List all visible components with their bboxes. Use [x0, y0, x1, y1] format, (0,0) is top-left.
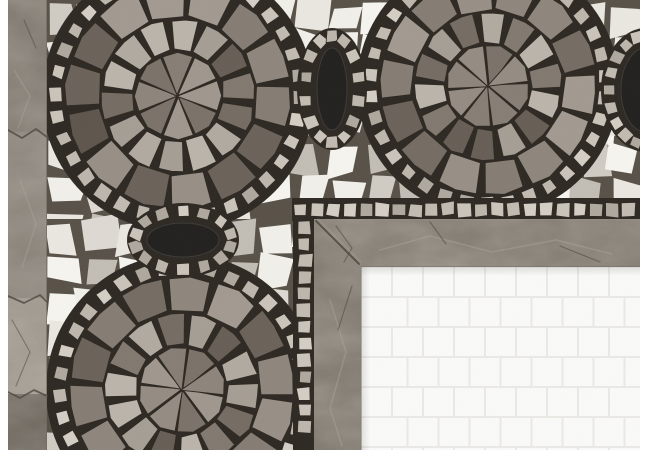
mosaic-tile-artwork: [0, 0, 650, 450]
mosaic-photo-layers: [8, 0, 650, 450]
photo-grain-overlay: [8, 0, 640, 450]
product-photo: [0, 0, 650, 450]
